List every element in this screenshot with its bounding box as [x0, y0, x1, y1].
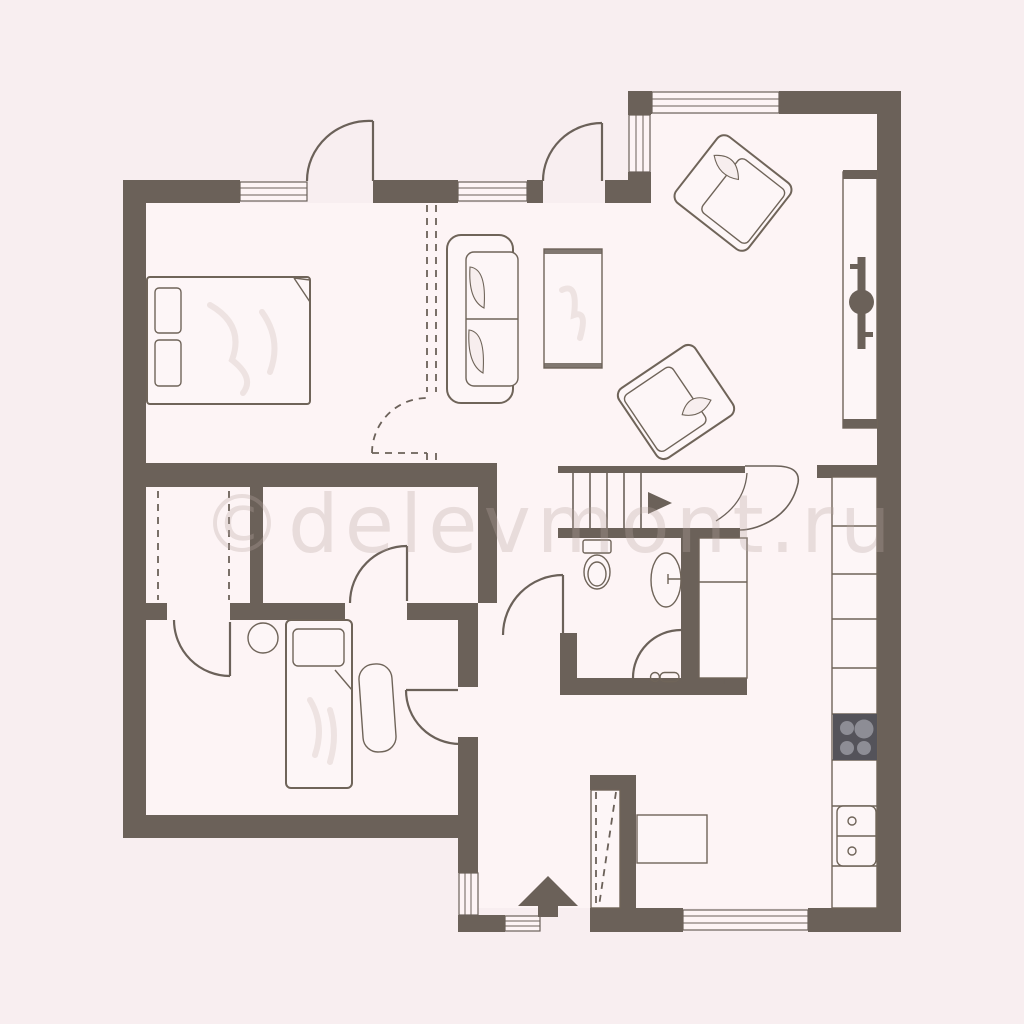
- window-living-side: [629, 115, 650, 172]
- door-dining-terrace: [543, 123, 602, 181]
- wall-entry-pier-leg: [620, 790, 636, 908]
- wall-bath-left: [560, 633, 577, 678]
- fireplace-niche: [843, 170, 877, 428]
- wall-v2-mid: [458, 603, 478, 687]
- wall-bottom-corner: [458, 915, 505, 932]
- wall-bedroom2-bottom: [123, 815, 466, 838]
- single-bed: [286, 620, 352, 788]
- bench: [358, 663, 397, 753]
- wall-entry-pier-cap: [590, 775, 636, 790]
- double-bed: [147, 277, 310, 404]
- wall-top-left-c: [527, 180, 543, 203]
- window-kitchen-bottom: [683, 910, 808, 930]
- coffee-table-rug: [544, 249, 602, 368]
- window-dining: [458, 182, 527, 201]
- wall-connector-b: [628, 172, 651, 203]
- dining-table: [637, 815, 707, 863]
- bed-pillow: [155, 340, 181, 386]
- wall-top-left-b: [373, 180, 458, 203]
- wall-bottom-b: [808, 908, 901, 932]
- wall-bottom-a: [590, 908, 683, 932]
- sofa: [447, 235, 518, 403]
- wall-v2-lower: [458, 737, 478, 873]
- wall-h2-b: [230, 603, 345, 620]
- door-bedroom1-terrace: [307, 121, 373, 181]
- wall-top-left-d: [605, 180, 630, 203]
- bed-pillow: [155, 288, 181, 333]
- bedroom1: [147, 277, 310, 404]
- wall-stairs-top: [558, 466, 745, 474]
- kitchen-sink: [837, 806, 876, 866]
- floorplan-canvas: ©delevmont.ru: [0, 0, 1024, 1024]
- wall-h2-c: [407, 603, 460, 620]
- wall-h2-a: [146, 603, 167, 620]
- stove: [833, 714, 877, 760]
- floorplan-drawing: ©delevmont.ru: [0, 0, 1024, 1024]
- wall-top-left-a: [123, 180, 240, 203]
- entry-pocket-door: [591, 790, 620, 908]
- wall-kitchen-stub: [817, 465, 901, 478]
- bed-pillow: [293, 629, 344, 666]
- wall-connector-a: [628, 91, 651, 115]
- window-bedroom1: [240, 182, 307, 201]
- wall-left: [123, 180, 146, 838]
- window-entry-small: [505, 916, 540, 931]
- window-living-top: [652, 92, 779, 113]
- stool: [248, 623, 278, 653]
- window-hall-side: [459, 873, 478, 915]
- watermark-text: ©delevmont.ru: [202, 478, 897, 571]
